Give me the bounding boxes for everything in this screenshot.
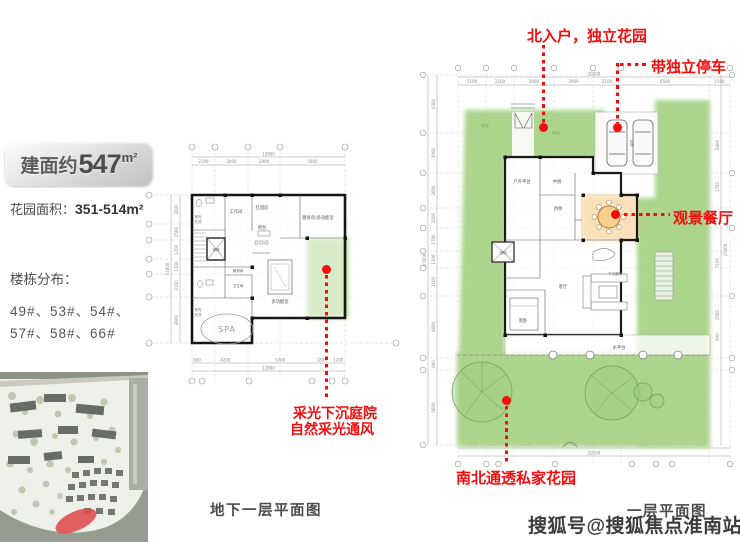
dim-label: 2100 [467,79,478,84]
dim-label: 7100 [715,257,720,268]
dim-label: 1200 [333,358,344,363]
dim-label: 1700 [715,181,720,192]
sunken-stairs [655,252,673,300]
room-label-lightwell: 采光 [194,307,202,312]
leader-line-sunken [325,275,328,401]
dim-label: 2600 [431,185,436,196]
room-label-outdoor: 户外平台 [513,178,530,185]
dim-label: 3500 [715,309,720,320]
building-numbers-line1: 49#、53#、54#、 [10,300,130,320]
room-label-bar: 吧台 [258,224,267,231]
room-label-multi: 多功能室 [271,298,289,305]
leader-dot-parking [613,123,622,132]
dim-label: 900 [193,358,201,363]
dim-label: 2100 [495,79,506,84]
room-label-green: 绿化 [552,129,560,135]
dim-label: 5700 [275,358,286,363]
dim-label: 2900 [568,79,579,84]
basement-plan: 2100 3000 2900 5800 13800 900 4200 5700 … [140,135,405,395]
dim-total: 20200 [588,451,601,456]
room-label-green: 绿化 [481,122,489,128]
dim-label: 1300 [431,254,436,265]
annotation-sunken-line2: 自然采光通风 [290,419,374,439]
room-label-lightwell: 天井 [194,312,202,317]
dim-label: 900 [715,333,720,341]
room-label-elevator: 电梯 [212,247,220,252]
annotation-parking: 带独立停车 [651,56,726,77]
floorplan-page: 建面约 547 m² 花园面积：351-514m² 楼栋分布： 49#、53#、… [0,0,740,542]
dim-label: 1500 [714,79,725,84]
room-label-sunken: 下沉庭院 [608,271,623,276]
garden-area-label: 花园面积： [10,202,75,217]
dim-total: 20200 [588,72,601,77]
leader-dot-garden [502,396,511,405]
guest-bed [510,298,538,330]
area-unit: m² [122,150,138,165]
room-label-spa: SPA [218,325,236,334]
dim-label: 5600 [715,139,720,150]
leader-dot-dining [611,210,620,219]
watermark: 搜狐号@搜狐焦点淮南站 [528,511,740,538]
dim-total: 13800 [262,152,275,157]
leader-line-north-entry [542,45,545,125]
dim-label: 4600 [431,321,436,332]
dim-label: 3000 [226,159,237,164]
room-label-water: 水平台 [613,344,626,351]
leader-line-parking-v [616,63,619,123]
leader-line-dining [624,213,670,216]
dim-label: 1700 [174,244,179,255]
building-numbers-line2: 57#、58#、66# [10,322,116,342]
area-value: 547 [79,149,121,180]
room-label-elevator: 电梯 [499,250,507,255]
dim-label: 3000 [431,147,436,158]
dim-label: 2100 [431,276,436,287]
room-label-toilet: 卫生间 [233,283,244,288]
dim-label: 3000 [529,79,540,84]
first-floor-plan: 2100 2100 3000 2900 2100 6500 1500 20200… [415,60,740,475]
room-label-living: 客厅 [559,283,568,290]
dim-total: 13800 [262,366,275,371]
dim-total: 27600 [422,253,427,266]
annotation-scenic-dining: 观景餐厅 [673,207,733,228]
room-label-lightwell: 天井 [194,219,202,224]
room-label-work: 工作间 [230,208,243,215]
leader-dot-sunken [322,265,331,274]
room-label-kitchen-cn: 中厨 [553,178,562,185]
dim-label: 2100 [198,159,209,164]
dim-total: 27600 [723,243,728,256]
room-label-wine: 红酒房 [256,204,269,211]
garden-area-value: 351-514m² [75,201,144,217]
annotation-north-entry: 北入户，独立花园 [527,25,647,46]
distribution-label: 楼栋分布： [10,268,78,288]
dim-label: 2100 [174,280,179,291]
room-label-garage: 车库 [630,139,635,147]
room-label-kitchen-w: 西厨 [554,206,563,212]
dim-label: 1700 [431,234,436,245]
dim-label: 1500 [174,227,179,238]
dim-label: 2600 [174,204,179,215]
dim-label: 2100 [602,79,613,84]
area-badge: 建面约 547 m² [5,142,153,186]
basement-caption: 地下一层平面图 [210,499,322,520]
dim-label: 1300 [174,261,179,272]
dim-label: 4600 [174,314,179,325]
site-map [0,372,148,542]
room-label-storage: 储物间 [233,268,244,273]
room-label-guest-bed: 客卧 [519,317,528,324]
dim-label: 5800 [307,159,318,164]
dim-label: 1500 [431,212,436,223]
annotation-private-garden: 南北通透私家花园 [456,467,576,488]
dim-label: 6500 [660,79,671,84]
basement-billiard-table [268,260,292,294]
area-prefix: 建面约 [21,151,78,178]
dim-label: 5600 [431,402,436,413]
dim-label: 4300 [431,98,436,109]
room-label-lightwell: 采光 [194,214,202,219]
leader-line-parking-h [620,63,648,66]
dim-label: 2900 [259,159,270,164]
room-label-gym: 健身房/多功能室 [302,214,334,221]
garden-area-line: 花园面积：351-514m² [10,199,144,218]
dim-label: 900 [431,360,436,368]
leader-line-garden [505,406,508,462]
leader-dot-north-entry [539,123,548,132]
dim-total: 13800 [165,262,170,275]
dim-label: 4200 [220,358,231,363]
